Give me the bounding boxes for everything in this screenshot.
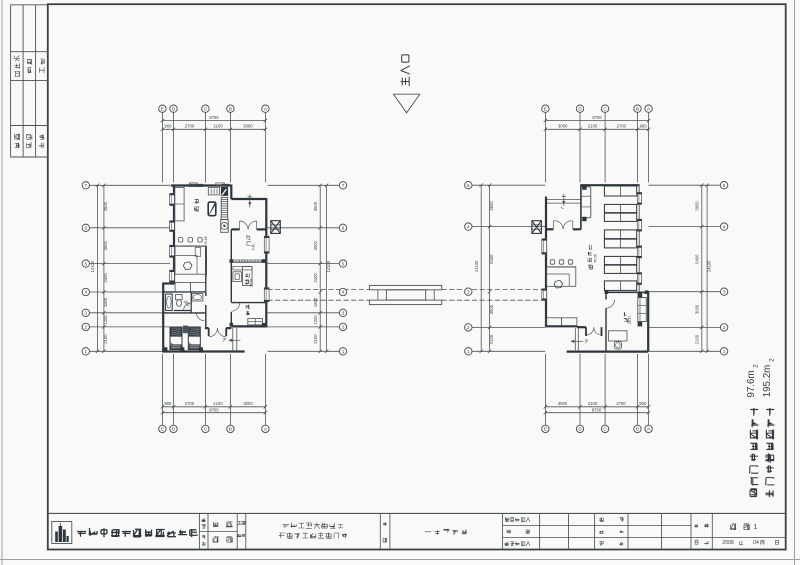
svg-text:2100: 2100 xyxy=(103,334,108,344)
svg-text:2700: 2700 xyxy=(616,401,626,406)
svg-text:8700: 8700 xyxy=(209,408,219,413)
svg-text:5: 5 xyxy=(467,183,470,188)
svg-text:2008: 2008 xyxy=(722,540,734,546)
svg-text:2: 2 xyxy=(342,325,345,330)
svg-text:3: 3 xyxy=(723,289,726,294)
svg-text:5400: 5400 xyxy=(489,254,494,264)
svg-text:7: 7 xyxy=(342,183,345,188)
svg-text:1200: 1200 xyxy=(103,315,108,325)
svg-text:B: B xyxy=(636,427,639,432)
svg-text:8700: 8700 xyxy=(592,408,602,413)
svg-text:3000: 3000 xyxy=(103,240,108,250)
svg-text:2400: 2400 xyxy=(103,272,108,282)
svg-text:8700: 8700 xyxy=(592,115,602,120)
svg-text:1200: 1200 xyxy=(313,315,318,325)
svg-text:4: 4 xyxy=(342,290,345,295)
svg-text:7: 7 xyxy=(85,183,88,188)
svg-text:900: 900 xyxy=(165,124,173,129)
svg-text:5: 5 xyxy=(342,261,345,266)
svg-text:14100: 14100 xyxy=(90,260,95,272)
svg-text:2700: 2700 xyxy=(185,124,195,129)
svg-text:E: E xyxy=(544,106,547,111)
svg-text:E: E xyxy=(161,106,164,111)
svg-text:2100: 2100 xyxy=(695,334,700,344)
svg-text:14.56: 14.56 xyxy=(250,279,254,288)
svg-text:195.2m: 195.2m xyxy=(762,365,773,398)
svg-text:3000: 3000 xyxy=(243,124,253,129)
svg-text:1: 1 xyxy=(467,349,470,354)
svg-text:E: E xyxy=(544,427,547,432)
svg-text:6.40: 6.40 xyxy=(252,244,256,251)
svg-text:E: E xyxy=(161,427,164,432)
svg-text:1800: 1800 xyxy=(103,297,108,307)
svg-text:3: 3 xyxy=(85,311,88,316)
svg-text:4: 4 xyxy=(723,224,726,229)
svg-text:2: 2 xyxy=(752,364,759,368)
svg-text:2100: 2100 xyxy=(213,401,223,406)
svg-text:97.6m: 97.6m xyxy=(746,370,757,397)
svg-text:3600: 3600 xyxy=(695,201,700,211)
svg-text:5: 5 xyxy=(723,183,726,188)
svg-text:3600: 3600 xyxy=(313,201,318,211)
svg-text:3600: 3600 xyxy=(489,201,494,211)
svg-text:3000: 3000 xyxy=(695,304,700,314)
svg-text:2: 2 xyxy=(723,325,726,330)
svg-text:5400: 5400 xyxy=(695,254,700,264)
svg-text:1: 1 xyxy=(342,349,345,354)
svg-text:04: 04 xyxy=(753,540,759,546)
svg-text:1800: 1800 xyxy=(313,297,318,307)
svg-text:76.56: 76.56 xyxy=(594,254,598,263)
svg-text:3600: 3600 xyxy=(103,201,108,211)
svg-text:14100: 14100 xyxy=(706,260,711,272)
svg-text:1: 1 xyxy=(723,349,726,354)
svg-text:2100: 2100 xyxy=(313,334,318,344)
svg-text:3000: 3000 xyxy=(243,401,253,406)
svg-text:16.47: 16.47 xyxy=(628,316,632,325)
svg-text:14100: 14100 xyxy=(474,260,479,272)
svg-text:3: 3 xyxy=(467,289,470,294)
svg-text:6: 6 xyxy=(85,226,88,231)
svg-text:2100: 2100 xyxy=(213,124,223,129)
svg-text:900: 900 xyxy=(640,124,648,129)
svg-text:14100: 14100 xyxy=(326,260,331,272)
svg-text:2100: 2100 xyxy=(489,334,494,344)
svg-text:900: 900 xyxy=(164,401,172,406)
svg-text:4: 4 xyxy=(85,290,88,295)
svg-text:3000: 3000 xyxy=(313,240,318,250)
svg-text:2: 2 xyxy=(467,325,470,330)
svg-text:6: 6 xyxy=(342,226,345,231)
svg-text:2: 2 xyxy=(768,358,775,362)
svg-text:5: 5 xyxy=(85,261,88,266)
svg-text:3000: 3000 xyxy=(558,401,568,406)
svg-text:3000: 3000 xyxy=(558,124,568,129)
svg-text:3000: 3000 xyxy=(489,304,494,314)
svg-text:2100: 2100 xyxy=(588,401,598,406)
svg-text:1: 1 xyxy=(85,349,88,354)
svg-text:2: 2 xyxy=(85,325,88,330)
svg-text:2700: 2700 xyxy=(185,401,195,406)
svg-text:3: 3 xyxy=(342,311,345,316)
svg-text:2100: 2100 xyxy=(588,124,598,129)
svg-text:45.68: 45.68 xyxy=(204,236,208,244)
svg-text:2400: 2400 xyxy=(313,272,318,282)
svg-text:900: 900 xyxy=(639,401,647,406)
svg-text:8700: 8700 xyxy=(209,115,219,120)
svg-text:B: B xyxy=(229,106,232,111)
svg-text:B: B xyxy=(229,427,232,432)
svg-text:2700: 2700 xyxy=(617,124,627,129)
svg-text:1: 1 xyxy=(754,524,758,531)
svg-text:B: B xyxy=(636,106,639,111)
svg-text:4: 4 xyxy=(467,224,470,229)
